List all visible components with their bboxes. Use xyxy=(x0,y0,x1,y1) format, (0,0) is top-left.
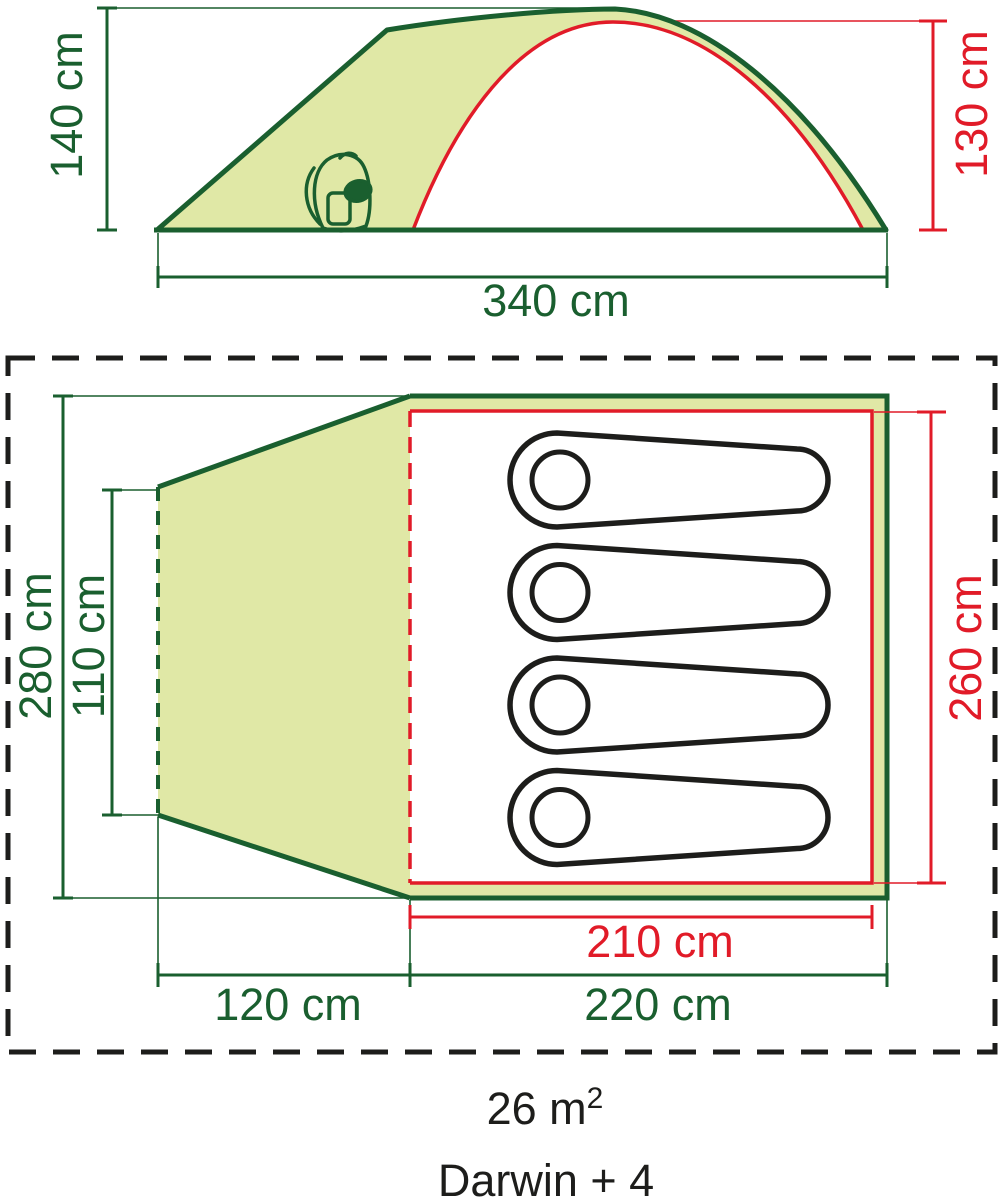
area-superscript: 2 xyxy=(587,1082,604,1115)
plan-vestibule-depth-label: 110 cm xyxy=(63,574,114,718)
footer: 26 m2 Darwin + 4 xyxy=(438,1082,654,1200)
model-name-label: Darwin + 4 xyxy=(438,1155,654,1200)
sleeping-bag-3 xyxy=(510,658,828,752)
dimension-220: 220 cm xyxy=(410,963,887,1030)
plan-inner-width-label: 210 cm xyxy=(586,916,734,967)
dimension-140: 140 cm xyxy=(41,8,117,230)
side-peak-height-label: 140 cm xyxy=(41,31,92,179)
diagram-svg: 140 cm 130 cm 340 cm xyxy=(0,0,1003,1200)
dimension-340: 340 cm xyxy=(158,233,887,326)
dimension-110: 110 cm xyxy=(63,490,122,815)
plan-inner-depth-label: 260 cm xyxy=(940,574,991,722)
sleeping-bag-2 xyxy=(510,546,828,640)
side-view: 140 cm 130 cm 340 cm xyxy=(41,8,997,326)
plan-total-depth-label: 280 cm xyxy=(10,572,61,720)
side-length-label: 340 cm xyxy=(482,275,630,326)
tent-dimension-diagram: 140 cm 130 cm 340 cm xyxy=(0,0,1003,1200)
dimension-120: 120 cm xyxy=(158,963,410,1030)
area-label: 26 m2 xyxy=(487,1082,604,1134)
sleeping-bag-4 xyxy=(510,771,828,865)
dimension-210: 210 cm xyxy=(410,905,872,967)
area-value: 26 m xyxy=(487,1083,587,1134)
side-inner-height-label: 130 cm xyxy=(946,30,997,178)
plan-vestibule-width-label: 120 cm xyxy=(214,979,362,1030)
dimension-260: 260 cm xyxy=(917,412,991,883)
floor-plan: 280 cm 110 cm 260 cm 210 cm xyxy=(8,358,995,1052)
sleeping-bag-1 xyxy=(510,433,828,527)
plan-bedroom-width-label: 220 cm xyxy=(584,979,732,1030)
dimension-130: 130 cm xyxy=(919,21,997,230)
